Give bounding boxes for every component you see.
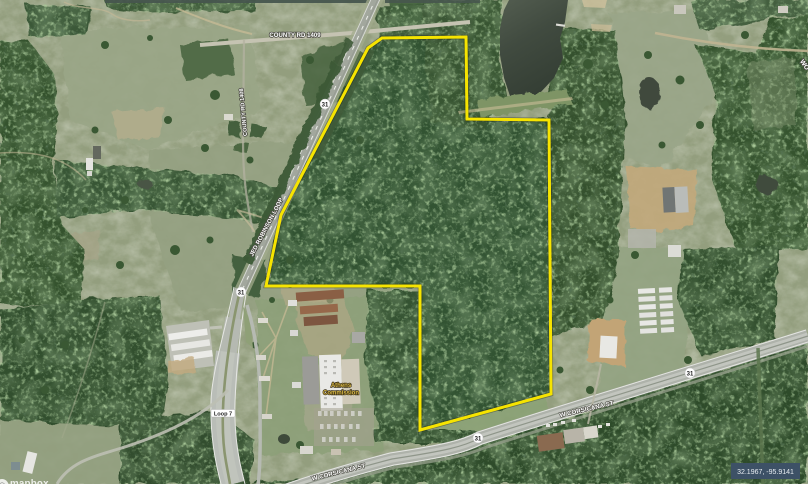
svg-text:32.1967, -95.9141: 32.1967, -95.9141 — [737, 469, 794, 476]
svg-text:Loop 7: Loop 7 — [214, 411, 232, 417]
svg-text:31: 31 — [475, 437, 482, 443]
svg-text:Athens: Athens — [331, 383, 352, 389]
svg-text:31: 31 — [238, 291, 245, 297]
svg-text:mapbox: mapbox — [10, 479, 49, 484]
svg-text:COUNTY RD 1409: COUNTY RD 1409 — [269, 33, 321, 39]
svg-text:31: 31 — [322, 103, 329, 109]
svg-text:Commission: Commission — [323, 391, 359, 397]
svg-text:31: 31 — [687, 372, 694, 378]
